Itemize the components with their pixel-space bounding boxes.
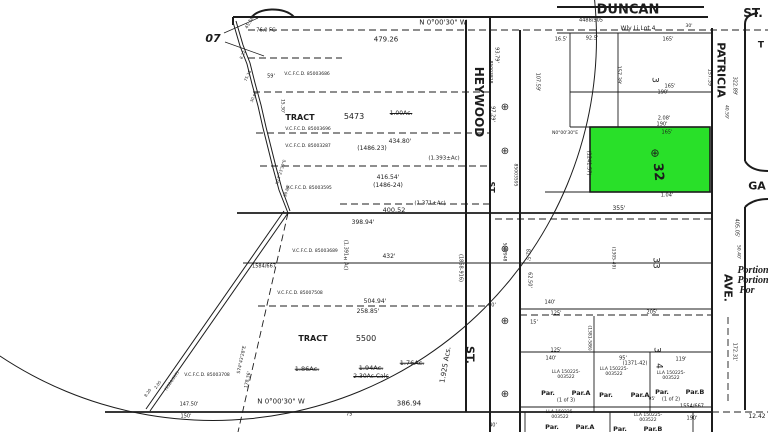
ref-label: V.C.F.C.D. 85003708 xyxy=(184,374,230,379)
note-label: (1 of 2) xyxy=(662,398,680,403)
dim-label: 16.5' xyxy=(555,38,568,43)
survey-symbol: ⊕ xyxy=(501,147,509,157)
dim-label: 140' xyxy=(545,301,556,306)
survey-symbol: ⊕ xyxy=(501,103,509,113)
ref-label: V.C.F.C.D. 85003689 xyxy=(292,250,338,255)
ref-label: V.C.F.C.D. 85003686 xyxy=(284,73,330,78)
dim-label: 432' xyxy=(382,254,395,260)
dim-label: 165' xyxy=(663,38,674,43)
survey-symbol: ⊕ xyxy=(501,317,509,327)
dim-label: 400.52 xyxy=(383,207,406,214)
par-label: Par.A xyxy=(576,424,595,431)
ref-label: (1241.57) xyxy=(586,151,591,176)
tract40-label: TRACT xyxy=(285,114,314,122)
par-label: Par. xyxy=(613,426,627,432)
dim-label: 190' xyxy=(687,417,698,422)
ref-label: (1305-49) xyxy=(610,247,615,269)
dim-label: 157.39' xyxy=(707,69,712,88)
dim-label: 30' xyxy=(686,25,693,30)
street-label-heywood-st: ST. xyxy=(465,346,476,364)
dim-label: 157.39' xyxy=(616,66,621,85)
dim-label: 386.94 xyxy=(397,401,422,408)
lot-number-33: 33 xyxy=(651,257,660,268)
dim-label: 190' xyxy=(657,123,668,128)
ref-label: V.C.F.C.D. 85007508 xyxy=(277,292,323,297)
dim-label: 95' xyxy=(649,398,656,403)
area-label: (1.371±Ac) xyxy=(414,201,445,207)
dim-label: 93.79' xyxy=(494,47,499,63)
ref-label: 003522 xyxy=(662,377,679,382)
dim-label: 107.59' xyxy=(535,73,540,92)
dim-label: 258.85' xyxy=(357,309,380,315)
ref-label: 003522 xyxy=(639,419,656,424)
street-label-patricia: PATRICIA xyxy=(716,42,727,97)
ref-label: V.C.F.C.D. 85003696 xyxy=(285,128,331,133)
dim-label: 50.40' xyxy=(735,245,740,259)
assessor-parcel-map: DUNCANST.PATRICIAAVE.HEYWOODST.ST.GAPort… xyxy=(0,0,768,432)
ref-label: (1381-586) xyxy=(586,325,591,350)
dim-label: 205' xyxy=(647,311,658,316)
area-label: 1.76Ac. xyxy=(400,360,424,367)
dim-label: 59' xyxy=(267,75,275,80)
par-label: Par.B xyxy=(644,426,663,432)
lot-number-3: 3 xyxy=(650,77,659,83)
dim-label: 434.80' xyxy=(389,139,412,145)
area-label: 1.86Ac. xyxy=(295,366,319,373)
dim-label: 97.29' xyxy=(490,106,495,122)
bearing-bottom: N 0°00'30" W xyxy=(257,399,305,406)
ref-label: (1868-916) xyxy=(458,254,463,282)
area-label: (1.393±Ac) xyxy=(428,156,459,162)
dim-label: 76.0 FG xyxy=(256,29,275,34)
dim-label: 479.26 xyxy=(374,37,399,44)
dim-label: 165' xyxy=(662,131,673,136)
par-label: Par.A xyxy=(631,392,650,399)
bearing-label: N0°00'30"E xyxy=(552,132,578,137)
ref-label: 85003595 xyxy=(512,164,517,187)
dim-label: 1.04' xyxy=(661,194,674,199)
ref-label: 85003818 xyxy=(487,61,492,84)
dim-label: 40.59' xyxy=(723,105,728,119)
dim-label: 125' xyxy=(551,312,562,317)
dim-label: 190' xyxy=(658,91,669,96)
street-label-duncan: DUNCAN xyxy=(597,4,660,17)
dim-label: 405.05' xyxy=(734,219,739,238)
ref-label: (1371-42) xyxy=(623,362,648,367)
ref-label: 003522 xyxy=(605,373,622,378)
dim-label: 398.94' xyxy=(352,220,375,226)
street-label-patricia-ave: AVE. xyxy=(723,274,734,302)
dim-label: 15' xyxy=(530,321,538,326)
dim-label: 62.50' xyxy=(527,272,532,288)
area-label: 1.94Ac. xyxy=(359,365,383,372)
dim-label: 416.54' xyxy=(377,175,400,181)
dim-label: 147.50' xyxy=(180,403,199,408)
ref-label: 003522 xyxy=(551,416,568,421)
lot-number-4b: 4 xyxy=(654,363,663,369)
dim-label: 40' xyxy=(488,304,496,309)
ref-label: 1554/667 xyxy=(680,405,704,410)
area-label: (1.391±Ac) xyxy=(343,240,348,270)
note-wly-li-lot4: Wly Li Lot 4 xyxy=(621,26,656,32)
dim-label: 82.5' xyxy=(525,249,530,262)
tract41-label: TRACT xyxy=(298,335,327,343)
note-label: (1 of 3) xyxy=(557,399,575,404)
area-label: 2.30Ac.Calc xyxy=(353,374,388,380)
ref-label: (1486-24) xyxy=(373,183,403,189)
dim-label: 119' xyxy=(676,358,687,363)
ref-label: 1584/667 xyxy=(252,265,276,270)
highlighted-parcel[interactable] xyxy=(590,127,710,192)
ref-label: 4488/505 xyxy=(579,19,603,24)
dim-label: 75' xyxy=(346,413,354,418)
lot-number-3b: 3 xyxy=(652,347,661,353)
dim-label: 140' xyxy=(546,357,557,362)
dim-label: 172.31' xyxy=(732,343,737,362)
tract40-number: 5473 xyxy=(344,113,364,121)
portion-text-3: Por xyxy=(740,286,755,296)
ref-label: (1486.23) xyxy=(357,146,387,152)
dim-label: 125' xyxy=(551,349,562,354)
dim-label: 355' xyxy=(612,206,625,212)
ref-label: V.C.F.C.D. 85003595 xyxy=(286,187,332,192)
ref-label: 003522 xyxy=(557,376,574,381)
dim-label: 15.30' xyxy=(279,99,284,113)
street-label-duncan-st: ST. xyxy=(743,7,763,19)
dim-label: 40' xyxy=(489,424,497,429)
par-label: Par.A xyxy=(572,390,591,397)
ref-label: V.C.F.C.D. 85003287 xyxy=(285,145,331,150)
dim-label: 12.42 xyxy=(748,414,765,420)
survey-symbol: ⊕ xyxy=(650,148,659,159)
tract41-number: 5500 xyxy=(356,335,376,343)
street-label-gary: GA xyxy=(748,181,766,192)
dim-label: 150' xyxy=(181,415,192,420)
lot-number-32: 32 xyxy=(651,162,666,181)
survey-symbol: ⊕ xyxy=(501,390,509,400)
par-label: Par. xyxy=(541,390,555,397)
edge-fragment-t: T xyxy=(758,42,764,51)
par-label: Par. xyxy=(655,389,669,396)
bearing-top: N 0°00'30" W xyxy=(419,20,467,27)
ref-label: 558/948 xyxy=(501,243,506,262)
dim-label: 322.89' xyxy=(732,77,737,96)
par-label: Par. xyxy=(545,424,559,431)
dim-label: 504.94' xyxy=(364,299,387,305)
dim-label: 92.5' xyxy=(586,37,599,42)
par-label: Par. xyxy=(599,392,613,399)
par-label: Par.B xyxy=(686,389,705,396)
area-label: 1.00Ac. xyxy=(390,111,413,117)
